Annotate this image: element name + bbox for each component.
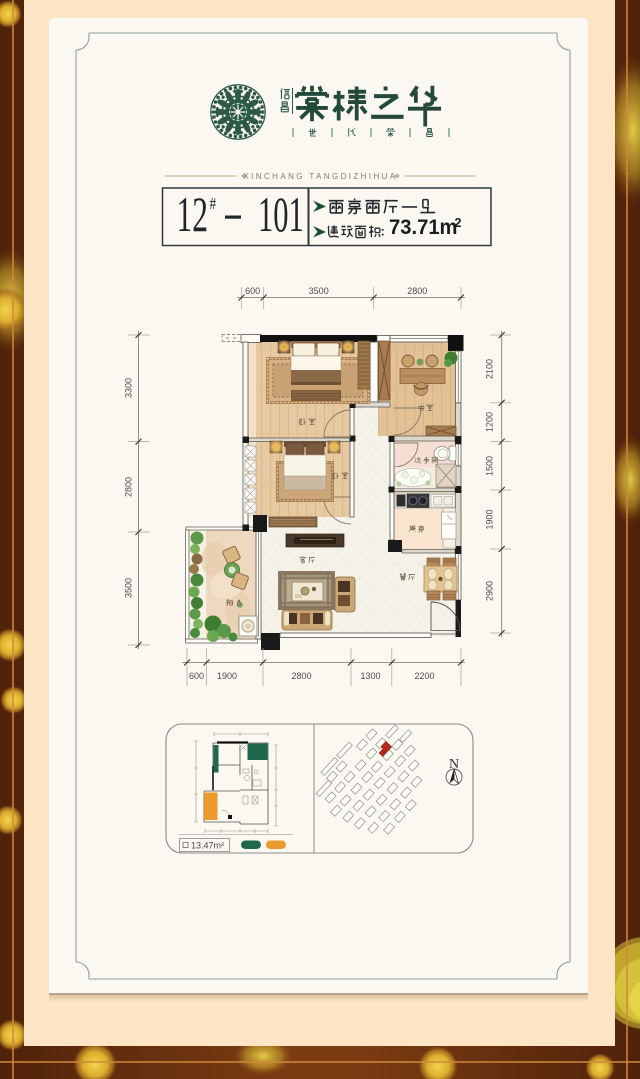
svg-text:1900: 1900 [485,509,495,529]
svg-text:2800: 2800 [124,477,134,497]
svg-text:3500: 3500 [309,286,329,296]
svg-text:2: 2 [455,216,462,230]
svg-text:600: 600 [189,671,204,681]
svg-text:101: 101 [258,186,304,242]
svg-text:13.47m²: 13.47m² [191,841,224,851]
svg-text:1900: 1900 [217,671,237,681]
svg-text:2800: 2800 [407,286,427,296]
svg-text:1300: 1300 [360,671,380,681]
svg-text:3500: 3500 [124,578,134,598]
svg-text:600: 600 [245,286,260,296]
svg-text:2100: 2100 [485,359,495,379]
svg-text:2900: 2900 [485,581,495,601]
svg-text:XINCHANG TANGDIZHIHUA: XINCHANG TANGDIZHIHUA [243,172,397,181]
svg-text:73.71m: 73.71m [389,215,458,239]
svg-text::: : [381,224,385,239]
svg-text:#: # [210,195,217,214]
svg-text:1200: 1200 [485,412,495,432]
svg-text:12: 12 [177,188,208,243]
svg-text:1500: 1500 [485,456,495,476]
svg-text:2200: 2200 [414,671,434,681]
svg-text:2800: 2800 [291,671,311,681]
svg-text:3300: 3300 [124,378,134,398]
